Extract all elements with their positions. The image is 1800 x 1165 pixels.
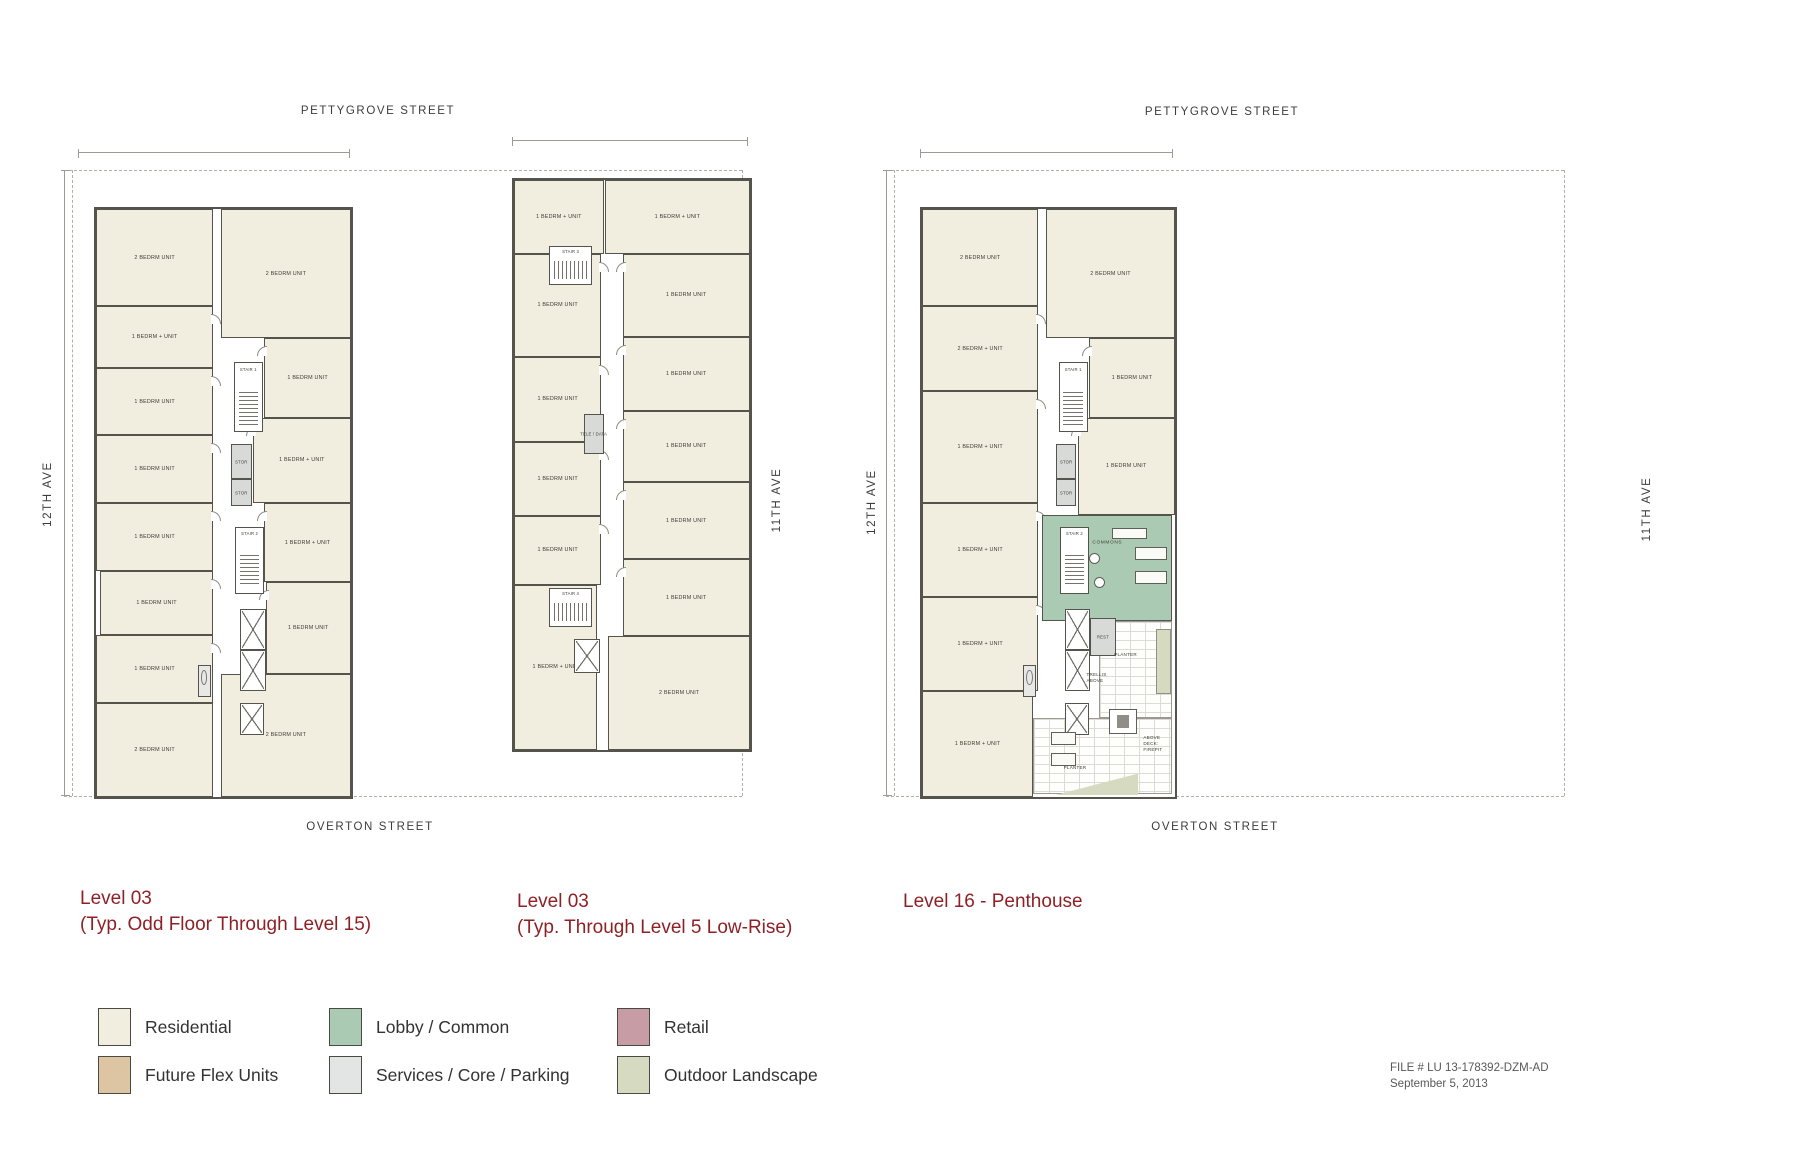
room: 1 BEDRM UNIT <box>96 368 213 436</box>
legend-label: Future Flex Units <box>145 1065 278 1086</box>
room: 1 BEDRM + UNIT <box>605 180 750 254</box>
tele-label: TELE / DATA <box>580 431 607 436</box>
room-label: 1 BEDRM UNIT <box>537 396 577 402</box>
room: 1 BEDRM UNIT <box>1089 338 1175 417</box>
room: 2 BEDRM UNIT <box>96 703 213 797</box>
legend-item-future-flex-units: Future Flex Units <box>98 1056 278 1094</box>
room-label: 2 BEDRM UNIT <box>659 690 699 696</box>
dimension-line-west-b <box>886 170 887 796</box>
legend-color-swatch <box>98 1008 131 1046</box>
legend-item-outdoor-landscape: Outdoor Landscape <box>617 1056 818 1094</box>
legend-item-lobby-common: Lobby / Common <box>329 1008 509 1046</box>
rtable <box>1089 553 1100 564</box>
stair: STAIR 3 <box>549 246 591 286</box>
stor-label: STOR <box>235 459 247 464</box>
legend-label: Retail <box>664 1017 709 1038</box>
elev <box>1065 703 1089 735</box>
door-swing-icon <box>211 579 221 589</box>
legend-item-services-core-parking: Services / Core / Parking <box>329 1056 570 1094</box>
sofa <box>1051 732 1076 745</box>
door-swing-icon <box>257 346 267 356</box>
deck-annotation: PLANTER <box>1114 652 1137 658</box>
file-number: FILE # LU 13-178392-DZM-AD <box>1390 1060 1549 1076</box>
room: 1 BEDRM UNIT <box>266 582 351 673</box>
tele: TELE / DATA <box>584 414 604 454</box>
drawing-sheet: PETTYGROVE STREET PETTYGROVE STREET OVER… <box>0 0 1800 1165</box>
property-line-east-b <box>1564 170 1565 796</box>
room: 1 BEDRM + UNIT <box>253 418 351 503</box>
room-label: 1 BEDRM UNIT <box>537 302 577 308</box>
deck-annotation: PLANTER <box>1064 765 1087 771</box>
room: 1 BEDRM UNIT <box>96 503 213 571</box>
property-line-west-a <box>72 170 73 796</box>
room: 1 BEDRM + UNIT <box>264 503 351 582</box>
stair-label: STAIR 1 <box>1064 367 1083 372</box>
street-label-pettygrove-west: PETTYGROVE STREET <box>301 105 455 117</box>
elev <box>240 609 266 650</box>
plan2-title: Level 03 (Typ. Through Level 5 Low-Rise) <box>517 889 792 941</box>
plan1-title: Level 03 (Typ. Odd Floor Through Level 1… <box>80 886 371 938</box>
elev <box>240 703 264 735</box>
rest-label: REST <box>1097 634 1109 639</box>
property-line-north-b <box>886 170 1564 171</box>
room-label: 1 BEDRM + UNIT <box>955 741 1000 747</box>
room: 1 BEDRM + UNIT <box>514 180 604 254</box>
room: 1 BEDRM UNIT <box>264 338 351 417</box>
door-swing-icon <box>616 567 626 577</box>
door-swing-icon <box>211 314 221 324</box>
floor-plan-level03-lowrise: 1 BEDRM + UNIT1 BEDRM UNIT1 BEDRM UNIT1 … <box>512 178 752 752</box>
rest: REST <box>1090 618 1115 656</box>
stair: STAIR 1 <box>1059 362 1088 433</box>
room: 1 BEDRM UNIT <box>623 337 750 411</box>
room: 1 BEDRM UNIT <box>623 559 750 636</box>
room-label: 1 BEDRM UNIT <box>288 625 328 631</box>
room-label: 1 BEDRM UNIT <box>666 518 706 524</box>
room-label: 1 BEDRM UNIT <box>287 375 327 381</box>
street-label-overton-east: OVERTON STREET <box>1151 821 1278 833</box>
property-line-north-a <box>64 170 742 171</box>
door-swing-icon <box>211 511 221 521</box>
legend-color-swatch <box>329 1008 362 1046</box>
room: 1 BEDRM + UNIT <box>922 597 1038 691</box>
street-label-12th-ave-east: 12TH AVE <box>866 469 878 535</box>
legend-label: Services / Core / Parking <box>376 1065 570 1086</box>
kitchen <box>1023 665 1036 697</box>
room-label: 1 BEDRM + UNIT <box>655 214 700 220</box>
room-label: 1 BEDRM UNIT <box>537 547 577 553</box>
stair-label: STAIR 3 <box>561 249 580 254</box>
elev <box>240 650 266 691</box>
door-swing-icon <box>211 376 221 386</box>
stair: STAIR 4 <box>549 588 591 628</box>
planter <box>1156 629 1171 694</box>
deck-annotation: TRELLIS ABOVE <box>1086 672 1106 684</box>
room: 2 BEDRM UNIT <box>922 209 1038 306</box>
dimension-line-plan2 <box>512 140 748 141</box>
door-swing-icon <box>599 365 609 375</box>
stor-label: STOR <box>235 490 247 495</box>
legend-color-swatch <box>617 1008 650 1046</box>
sofa <box>1051 753 1076 766</box>
floor-plan-level03-tower: 2 BEDRM UNIT1 BEDRM + UNIT1 BEDRM UNIT1 … <box>94 207 353 799</box>
plan2-title-line1: Level 03 <box>517 889 792 915</box>
stair: STAIR 2 <box>1060 527 1089 595</box>
stor: STOR <box>1056 444 1076 479</box>
room: 1 BEDRM UNIT <box>1078 418 1175 515</box>
room: 1 BEDRM UNIT <box>623 411 750 482</box>
plan3-title-line1: Level 16 - Penthouse <box>903 889 1083 915</box>
room-label: 1 BEDRM + UNIT <box>957 641 1002 647</box>
street-label-11th-ave-east: 11TH AVE <box>1641 477 1653 542</box>
commons-label: COMMONS <box>1092 540 1122 545</box>
stair-label: STAIR 2 <box>1065 531 1084 536</box>
legend-label: Residential <box>145 1017 232 1038</box>
stor: STOR <box>231 444 251 479</box>
room: 1 BEDRM + UNIT <box>922 503 1038 597</box>
room: 1 BEDRM + UNIT <box>922 691 1033 797</box>
door-swing-icon <box>211 443 221 453</box>
legend-color-swatch <box>617 1056 650 1094</box>
file-date: September 5, 2013 <box>1390 1076 1549 1092</box>
room: 1 BEDRM UNIT <box>100 571 213 636</box>
door-swing-icon <box>616 490 626 500</box>
room-label: 1 BEDRM + UNIT <box>279 457 324 463</box>
room-label: 1 BEDRM UNIT <box>136 600 176 606</box>
room: 1 BEDRM + UNIT <box>922 391 1038 503</box>
room-label: 1 BEDRM UNIT <box>134 466 174 472</box>
room-label: 1 BEDRM + UNIT <box>285 540 330 546</box>
rtable <box>1094 577 1105 588</box>
room-label: 2 BEDRM UNIT <box>134 255 174 261</box>
elev <box>1065 609 1090 650</box>
firepit <box>1109 709 1137 734</box>
kitchen <box>198 665 211 697</box>
street-label-12th-ave-west: 12TH AVE <box>42 461 54 527</box>
room-label: 1 BEDRM + UNIT <box>957 547 1002 553</box>
plan3-title: Level 16 - Penthouse <box>903 889 1083 915</box>
room-label: 1 BEDRM + UNIT <box>957 444 1002 450</box>
legend-label: Lobby / Common <box>376 1017 509 1038</box>
dimension-line-west-a <box>64 170 65 796</box>
legend-item-residential: Residential <box>98 1008 232 1046</box>
door-swing-icon <box>616 419 626 429</box>
legend-label: Outdoor Landscape <box>664 1065 818 1086</box>
room-label: 1 BEDRM UNIT <box>537 476 577 482</box>
door-swing-icon <box>211 643 221 653</box>
door-swing-icon <box>599 524 609 534</box>
room-label: 1 BEDRM UNIT <box>1106 463 1146 469</box>
room: 2 BEDRM UNIT <box>608 636 750 750</box>
stair-label: STAIR 1 <box>239 367 258 372</box>
sofa <box>1112 528 1147 539</box>
room-label: 1 BEDRM UNIT <box>134 399 174 405</box>
stor-label: STOR <box>1060 490 1072 495</box>
room: 1 BEDRM UNIT <box>623 254 750 337</box>
room-label: 2 BEDRM UNIT <box>266 732 306 738</box>
legend-item-retail: Retail <box>617 1008 709 1046</box>
door-swing-icon <box>616 345 626 355</box>
door-swing-icon <box>257 511 267 521</box>
plan2-title-line2: (Typ. Through Level 5 Low-Rise) <box>517 915 792 941</box>
room-label: 2 BEDRM UNIT <box>1090 271 1130 277</box>
stair-label: STAIR 2 <box>240 531 259 536</box>
property-line-west-b <box>894 170 895 796</box>
legend-color-swatch <box>98 1056 131 1094</box>
door-swing-icon <box>1082 346 1092 356</box>
dimension-line-plan1 <box>78 152 350 153</box>
stor: STOR <box>1056 479 1076 505</box>
door-swing-icon <box>1036 399 1046 409</box>
room-label: 1 BEDRM + UNIT <box>536 214 581 220</box>
plan1-title-line2: (Typ. Odd Floor Through Level 15) <box>80 912 371 938</box>
room-label: 1 BEDRM UNIT <box>134 534 174 540</box>
stair-label: STAIR 4 <box>561 591 580 596</box>
room-label: 1 BEDRM + UNIT <box>533 664 578 670</box>
room: 1 BEDRM UNIT <box>623 482 750 559</box>
file-info-block: FILE # LU 13-178392-DZM-AD September 5, … <box>1390 1060 1549 1092</box>
door-swing-icon <box>1036 314 1046 324</box>
room: 1 BEDRM UNIT <box>514 516 601 584</box>
room-label: 2 BEDRM + UNIT <box>957 346 1002 352</box>
door-swing-icon <box>616 262 626 272</box>
street-label-11th-ave-west: 11TH AVE <box>771 468 783 533</box>
room: 1 BEDRM UNIT <box>96 435 213 503</box>
stair: STAIR 2 <box>235 527 264 595</box>
room-label: 1 BEDRM UNIT <box>666 371 706 377</box>
room-label: 1 BEDRM UNIT <box>666 443 706 449</box>
room-label: 1 BEDRM UNIT <box>134 666 174 672</box>
plan1-title-line1: Level 03 <box>80 886 371 912</box>
street-label-overton-west: OVERTON STREET <box>306 821 433 833</box>
room: 2 BEDRM UNIT <box>221 209 351 338</box>
room-label: 1 BEDRM UNIT <box>666 595 706 601</box>
sofa <box>1135 571 1168 584</box>
room: 2 BEDRM + UNIT <box>922 306 1038 391</box>
stor: STOR <box>231 479 251 505</box>
room-label: 2 BEDRM UNIT <box>134 747 174 753</box>
room-label: 2 BEDRM UNIT <box>960 255 1000 261</box>
legend-color-swatch <box>329 1056 362 1094</box>
stor-label: STOR <box>1060 459 1072 464</box>
room: 2 BEDRM UNIT <box>1046 209 1175 338</box>
deck-annotation: ABOVE DECK: FIREPIT <box>1143 735 1162 753</box>
room-label: 2 BEDRM UNIT <box>266 271 306 277</box>
room-label: 1 BEDRM + UNIT <box>132 334 177 340</box>
elev <box>1065 650 1090 691</box>
room-label: 1 BEDRM UNIT <box>1112 375 1152 381</box>
room: 2 BEDRM UNIT <box>96 209 213 306</box>
room-label: 1 BEDRM UNIT <box>666 292 706 298</box>
street-label-pettygrove-east: PETTYGROVE STREET <box>1145 106 1299 118</box>
room: 2 BEDRM UNIT <box>221 674 351 797</box>
stair: STAIR 1 <box>234 362 263 433</box>
room: 1 BEDRM + UNIT <box>96 306 213 368</box>
door-swing-icon <box>599 262 609 272</box>
dimension-line-plan3 <box>920 152 1173 153</box>
room: 1 BEDRM UNIT <box>96 635 213 703</box>
elev <box>574 639 600 673</box>
floor-plan-level16-penthouse: 2 BEDRM UNIT2 BEDRM + UNIT1 BEDRM + UNIT… <box>920 207 1177 799</box>
sofa <box>1135 547 1168 560</box>
